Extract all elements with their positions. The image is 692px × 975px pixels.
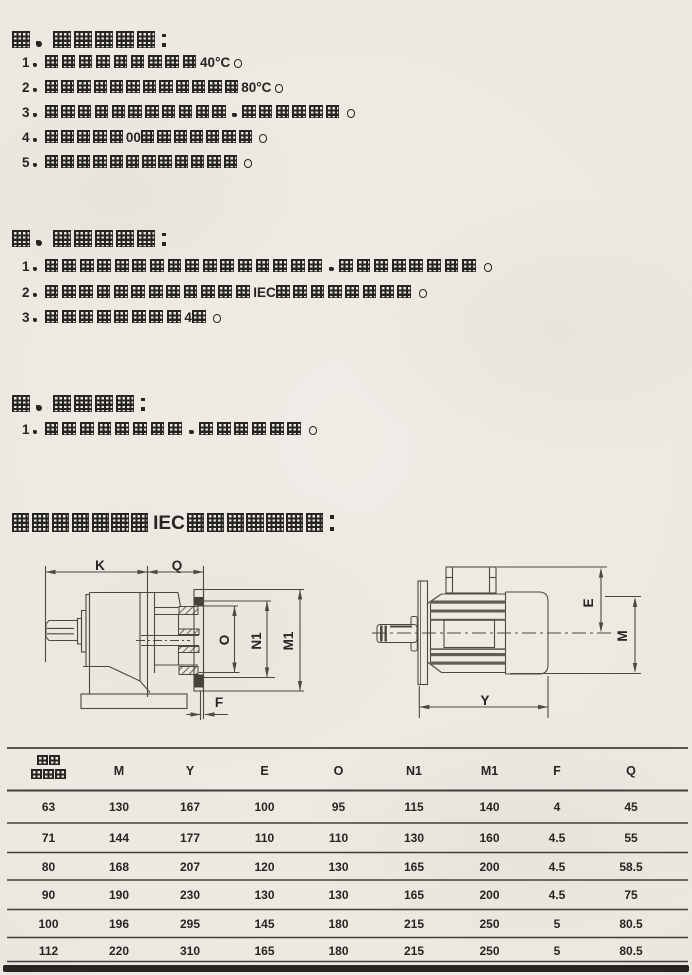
svg-text:K: K [95, 558, 105, 573]
svg-text:N1: N1 [249, 632, 264, 650]
svg-text:M: M [615, 630, 630, 641]
svg-text:Q: Q [172, 558, 183, 573]
svg-text:Y: Y [480, 693, 489, 708]
svg-text:F: F [215, 695, 223, 710]
svg-text:E: E [581, 598, 596, 607]
svg-text:O: O [217, 635, 232, 646]
svg-text:M1: M1 [281, 631, 296, 650]
